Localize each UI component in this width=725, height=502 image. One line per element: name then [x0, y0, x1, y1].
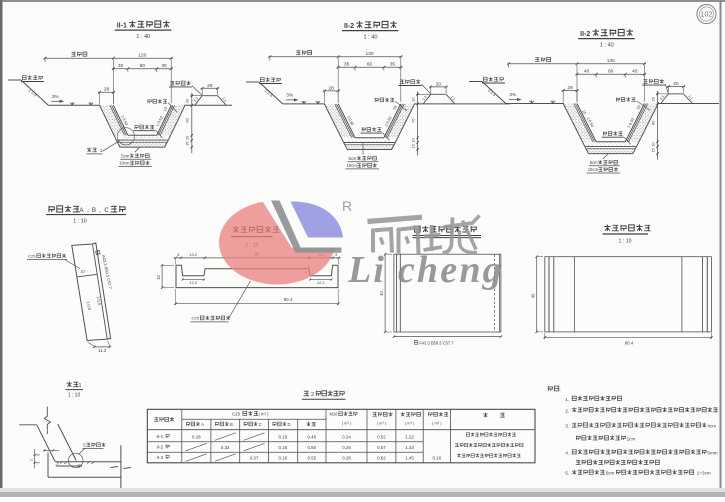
- svg-text:0.18: 0.18: [279, 445, 288, 450]
- svg-text:5cm: 5cm: [121, 154, 129, 159]
- svg-text:28: 28: [567, 85, 573, 91]
- svg-text:1 : 40: 1 : 40: [600, 43, 614, 49]
- svg-text:1 : 10: 1 : 10: [68, 393, 81, 399]
- svg-text:40: 40: [584, 68, 590, 74]
- svg-text:( m³ ): ( m³ ): [259, 411, 270, 416]
- svg-text:28: 28: [329, 85, 335, 91]
- svg-text:0.37: 0.37: [250, 456, 259, 461]
- svg-text:1 : 40: 1 : 40: [136, 34, 150, 40]
- svg-text:0.62: 0.62: [377, 456, 386, 461]
- svg-text:28: 28: [104, 87, 110, 93]
- svg-text:4cm: 4cm: [707, 424, 716, 429]
- svg-text:5.: 5.: [565, 471, 569, 477]
- svg-text:0.46: 0.46: [308, 435, 317, 440]
- svg-text:C: C: [259, 422, 262, 427]
- svg-text:,: ,: [99, 207, 101, 214]
- svg-text:1: 1: [100, 148, 103, 153]
- svg-text:C25: C25: [28, 253, 36, 258]
- svg-text:10: 10: [411, 138, 415, 142]
- svg-text:3%: 3%: [509, 92, 517, 98]
- svg-text:0.50: 0.50: [308, 445, 317, 450]
- svg-text:0.57: 0.57: [377, 445, 386, 450]
- svg-text:0.18: 0.18: [279, 456, 288, 461]
- svg-text:60: 60: [367, 61, 373, 67]
- svg-text:2: 2: [30, 459, 34, 461]
- svg-text:11.2: 11.2: [98, 348, 107, 353]
- svg-text:5mm: 5mm: [707, 450, 717, 455]
- svg-text::: :: [559, 387, 561, 393]
- svg-text:30: 30: [161, 63, 167, 69]
- svg-text:II-2: II-2: [157, 444, 164, 449]
- svg-text:1 : 40: 1 : 40: [364, 35, 378, 41]
- svg-text:1.22: 1.22: [405, 435, 414, 440]
- svg-text:D: D: [287, 422, 290, 427]
- svg-text:B: B: [92, 207, 96, 214]
- svg-text:A: A: [201, 422, 204, 427]
- svg-text:0.32: 0.32: [221, 445, 230, 450]
- svg-text:10: 10: [651, 143, 655, 147]
- svg-text:Li cheng: Li cheng: [347, 249, 504, 291]
- svg-text:35: 35: [344, 61, 350, 67]
- svg-text:II-1: II-1: [157, 434, 164, 439]
- svg-text:1 : 10: 1 : 10: [619, 239, 632, 245]
- svg-text:130: 130: [365, 51, 373, 57]
- svg-text:15: 15: [651, 148, 655, 152]
- svg-text:( m³ ): ( m³ ): [377, 421, 387, 426]
- svg-text:0.28: 0.28: [342, 456, 351, 461]
- svg-text:C25: C25: [192, 316, 200, 321]
- svg-text:M10: M10: [330, 412, 339, 417]
- svg-text:3%: 3%: [286, 92, 294, 98]
- svg-text:13.2: 13.2: [189, 252, 198, 257]
- svg-text:3.: 3.: [565, 424, 569, 430]
- svg-text:30: 30: [118, 63, 124, 69]
- svg-text:40: 40: [632, 68, 638, 74]
- svg-text:( m³ ): ( m³ ): [432, 421, 442, 426]
- svg-text:40: 40: [530, 293, 535, 298]
- svg-text:R: R: [342, 198, 352, 214]
- svg-text:90.4: 90.4: [625, 340, 634, 345]
- svg-text:1 : 10: 1 : 10: [73, 219, 87, 225]
- svg-text:10: 10: [186, 136, 190, 140]
- svg-text:0.16: 0.16: [433, 456, 442, 461]
- svg-text:20: 20: [207, 83, 213, 89]
- svg-text:20: 20: [673, 81, 679, 87]
- svg-text:2.: 2.: [565, 408, 569, 414]
- svg-text:12.2: 12.2: [317, 280, 325, 285]
- svg-text:( m³ ): ( m³ ): [405, 421, 415, 426]
- svg-text:1~3cm: 1~3cm: [697, 471, 711, 476]
- svg-text:C: C: [104, 207, 109, 214]
- svg-text:120: 120: [138, 52, 146, 58]
- svg-text:60: 60: [140, 63, 146, 69]
- svg-text:35: 35: [390, 61, 396, 67]
- svg-text:1.45: 1.45: [405, 456, 414, 461]
- svg-text:0.55: 0.55: [308, 456, 317, 461]
- svg-text:140: 140: [607, 58, 615, 64]
- svg-text:0.18: 0.18: [279, 435, 288, 440]
- svg-text:10cm: 10cm: [119, 161, 130, 166]
- svg-text:B: B: [230, 422, 233, 427]
- svg-text:5cm: 5cm: [606, 471, 615, 476]
- svg-text:II-2: II-2: [344, 23, 354, 30]
- svg-text:15: 15: [186, 142, 190, 146]
- svg-text:1cm: 1cm: [627, 436, 636, 441]
- svg-text:II-1: II-1: [117, 22, 127, 29]
- svg-text:10: 10: [156, 275, 161, 280]
- svg-text:1.33: 1.33: [405, 445, 414, 450]
- svg-text:5cm: 5cm: [590, 160, 598, 165]
- svg-text:0.24: 0.24: [342, 435, 351, 440]
- svg-text:60: 60: [608, 68, 614, 74]
- svg-text:5cm: 5cm: [349, 156, 357, 161]
- svg-text:102: 102: [701, 10, 713, 19]
- svg-text:3%: 3%: [52, 94, 60, 100]
- svg-text:4.: 4.: [565, 450, 569, 456]
- svg-text:1: 1: [79, 383, 82, 389]
- svg-text:12.2: 12.2: [189, 280, 197, 285]
- svg-text:15: 15: [411, 144, 415, 148]
- svg-text:0.26: 0.26: [342, 445, 351, 450]
- svg-text:0.52: 0.52: [377, 435, 386, 440]
- svg-text:,: ,: [87, 207, 89, 214]
- svg-text:40: 40: [379, 291, 384, 296]
- svg-text:2: 2: [311, 392, 314, 398]
- svg-text:II-2: II-2: [580, 31, 590, 38]
- svg-text:C25: C25: [232, 411, 241, 416]
- svg-text:90.4: 90.4: [284, 297, 293, 302]
- svg-text:( m³ ): ( m³ ): [342, 421, 352, 426]
- svg-text:1.: 1.: [565, 397, 569, 403]
- svg-text:II-3: II-3: [157, 455, 164, 460]
- svg-text:20: 20: [436, 81, 442, 87]
- svg-text:10cm: 10cm: [588, 167, 599, 172]
- svg-text:10cm: 10cm: [347, 163, 358, 168]
- svg-text:A43.3 B50.3 C57.7: A43.3 B50.3 C57.7: [419, 341, 454, 346]
- svg-text:0.28: 0.28: [192, 435, 201, 440]
